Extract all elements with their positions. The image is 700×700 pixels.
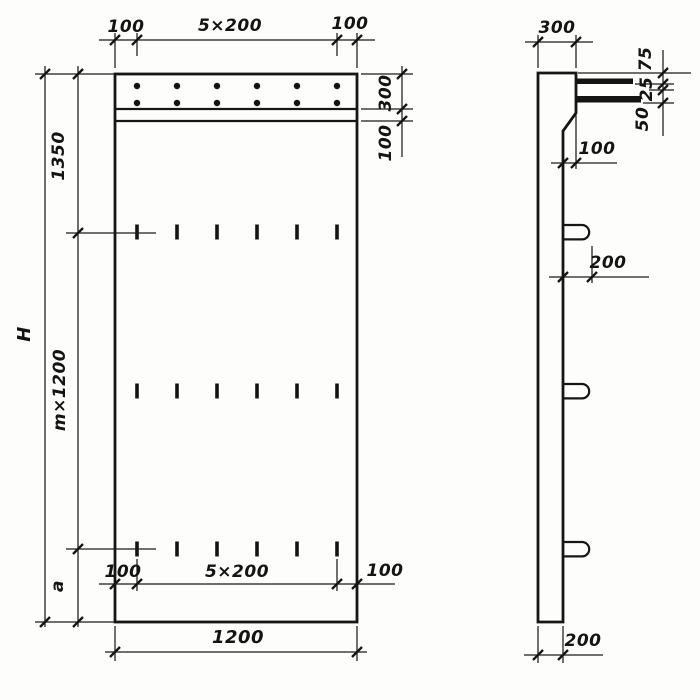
side-top-dimension: 300 [525,18,593,68]
dim-bot-left: 100 [105,562,142,582]
dim-band-100: 100 [376,125,396,162]
side-base-dimension: 200 [524,626,603,663]
dim-top-left: 100 [108,17,145,37]
lifting-loop [563,542,589,556]
panel-outline [115,74,357,622]
protruding-bar-upper [576,79,633,85]
dim-overall-height-H: H [14,326,35,342]
section-outline [538,73,576,622]
dim-bot-center: 5×200 [205,562,269,582]
rebar-dots [134,83,340,106]
front-view: 100 5×200 100 300 100 H [14,14,413,661]
side-right-chain-dimension: 75 25 50 [578,47,691,136]
dim-module-m1200: m×1200 [50,349,70,431]
dim-width-1200: 1200 [212,627,264,648]
slot-rows [135,225,339,557]
dim-base-200: 200 [565,631,602,651]
front-right-dimension: 300 100 [361,66,413,162]
side-step-dimension: 100 [551,115,617,169]
dim-band-300: 300 [376,75,396,112]
dim-top-center: 5×200 [198,16,262,36]
dim-head-300: 300 [539,18,576,38]
dim-a: a [48,580,68,592]
dim-top-right: 100 [332,14,369,34]
dim-bot-right: 100 [367,561,404,581]
dim-loop-200: 200 [590,253,627,273]
dim-75: 75 [636,47,656,72]
drawing-sheet: 100 5×200 100 300 100 H [0,0,700,700]
dim-step-100: 100 [579,139,616,159]
front-width-dimension: 1200 [105,626,367,661]
lifting-loops [563,225,589,556]
dim-25: 25 [637,77,657,102]
front-left-dimension: H 1350 m×1200 a [14,66,156,627]
dim-1350: 1350 [49,131,69,180]
technical-drawing: 100 5×200 100 300 100 H [0,0,700,700]
front-top-dimension: 100 5×200 100 [99,14,375,68]
lifting-loop [563,225,589,239]
side-view: 300 75 25 50 100 [524,18,691,663]
protruding-bar-lower [576,96,641,103]
lifting-loop [563,384,589,398]
dim-50: 50 [633,107,653,132]
